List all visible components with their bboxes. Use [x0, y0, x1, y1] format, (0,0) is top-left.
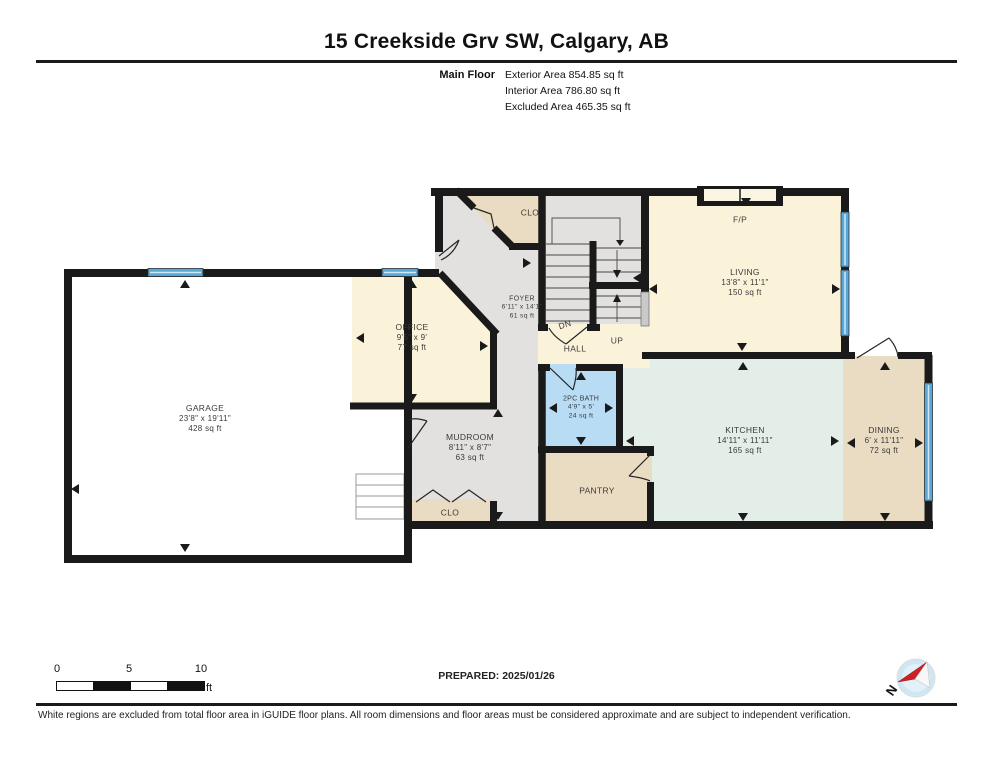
header-divider [36, 60, 957, 63]
stat-interior-area: Interior Area 786.80 sq ft [505, 85, 620, 97]
disclaimer-text: White regions are excluded from total fl… [38, 710, 968, 721]
living-dining-door [857, 338, 898, 358]
living-wall-panel [641, 292, 649, 326]
room-label-kitchen: KITCHEN14'11" x 11'11"165 sq ft [717, 425, 773, 457]
room-label-mudroom: MUDROOM8'11" x 8'7"63 sq ft [446, 432, 494, 464]
stat-excluded-area: Excluded Area 465.35 sq ft [505, 101, 631, 113]
room-label-hall: HALL [564, 343, 586, 354]
room-label-dining: DINING6' x 11'11"72 sq ft [865, 425, 904, 457]
page-title: 15 Creekside Grv SW, Calgary, AB [0, 30, 993, 54]
room-label-garage: GARAGE23'8" x 19'11"428 sq ft [179, 403, 231, 435]
footer-divider [36, 703, 957, 706]
fireplace-niche [697, 186, 783, 206]
scale-unit: ft [206, 682, 212, 694]
prepared-date: PREPARED: 2025/01/26 [0, 670, 993, 682]
room-label-stairs-up: UP [611, 335, 623, 346]
floor-plan-page: 15 Creekside Grv SW, Calgary, AB Main Fl… [0, 0, 993, 768]
room-label-closet-bottom: CLO [441, 507, 459, 518]
floor-plan-drawing [60, 186, 933, 566]
room-label-office: OFFICE9'5" x 9'77 sq ft [396, 322, 429, 354]
room-label-foyer: FOYER6'11" x 14'1"61 sq ft [502, 295, 543, 322]
room-label-bath: 2PC BATH4'9" x 5'24 sq ft [563, 395, 599, 422]
floor-label: Main Floor [325, 69, 495, 81]
stat-exterior-area: Exterior Area 854.85 sq ft [505, 69, 623, 81]
room-label-pantry: PANTRY [579, 485, 615, 496]
floor-plan: GARAGE23'8" x 19'11"428 sq ft OFFICE9'5"… [60, 186, 933, 566]
scale-bar [57, 681, 205, 689]
room-label-closet-top: CLO [521, 207, 539, 218]
compass-icon: N [880, 648, 946, 708]
room-label-fireplace: F/P [733, 214, 747, 225]
room-label-living: LIVING13'8" x 11'1"150 sq ft [721, 267, 768, 299]
